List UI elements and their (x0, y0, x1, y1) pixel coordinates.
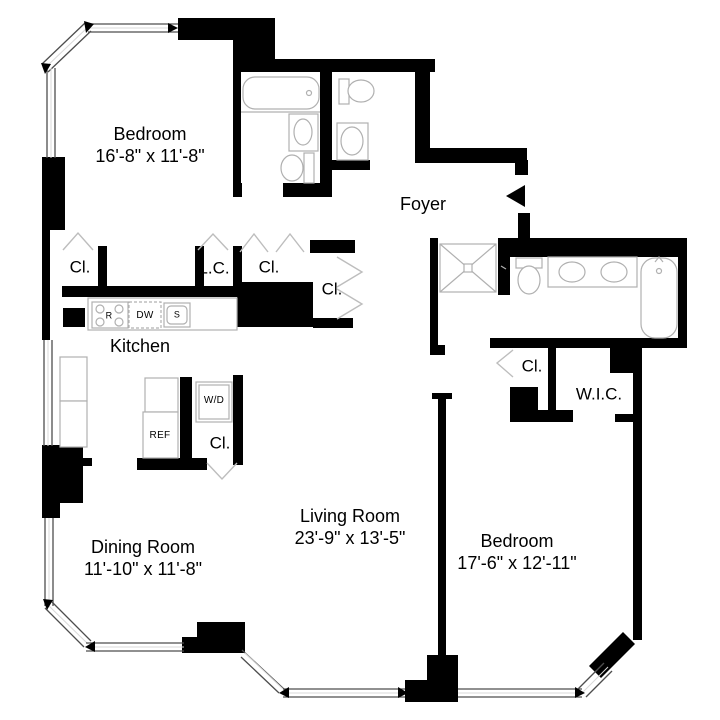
closet-label-bedroom2: Cl. (522, 357, 543, 378)
closet-label-bedroom1: Cl. (70, 258, 91, 279)
room-name: Bedroom (95, 124, 204, 146)
room-label-foyer: Foyer (400, 194, 446, 216)
closet-door-chevron (276, 234, 304, 252)
room-label-living-room: Living Room 23'-9" x 13'-5" (295, 506, 406, 550)
closet-door-chevron (497, 350, 513, 377)
room-dims: 16'-8" x 11'-8" (95, 146, 204, 168)
closet-door-chevron (63, 233, 93, 250)
appliance-label-sink: S (174, 310, 180, 321)
toilet-icon (516, 258, 542, 294)
appliance-label-refrigerator: REF (150, 430, 171, 442)
floor-plan-drawing (0, 0, 720, 720)
bathtub-icon (641, 257, 677, 338)
room-name: Bedroom (457, 531, 576, 553)
room-label-kitchen: Kitchen (110, 336, 170, 358)
toilet-icon (339, 79, 374, 104)
closet-door-chevron (240, 234, 268, 252)
closet-label-laundry: Cl. (210, 434, 231, 455)
room-label-bedroom-1: Bedroom 16'-8" x 11'-8" (95, 124, 204, 168)
room-dims: 23'-9" x 13'-5" (295, 528, 406, 550)
room-label-dining-room: Dining Room 11'-10" x 11'-8" (84, 537, 202, 581)
cabinet-icon (60, 357, 87, 401)
appliance-label-dishwasher: DW (136, 310, 153, 322)
sink-icon (337, 123, 368, 160)
room-label-wic: W.I.C. (576, 385, 622, 406)
closet-label-foyer: Cl. (322, 280, 343, 301)
cabinet-icon (145, 378, 178, 412)
walls-layer (42, 18, 687, 702)
closet-label-hall: Cl. (259, 258, 280, 279)
room-name: Dining Room (84, 537, 202, 559)
room-name: Living Room (295, 506, 406, 528)
master-bathroom (440, 244, 677, 338)
room-dims: 11'-10" x 11'-8" (84, 559, 202, 581)
toilet-icon (281, 153, 314, 183)
sink-icon (289, 114, 318, 151)
double-sink-vanity-icon (548, 257, 637, 287)
closet-label-linen: L.C. (198, 259, 229, 280)
room-label-bedroom-2: Bedroom 17'-6" x 12'-11" (457, 531, 576, 575)
closet-door-chevron (207, 463, 237, 479)
bathroom-2 (337, 79, 374, 160)
entry-door-icon (506, 185, 525, 207)
shower-icon (440, 244, 506, 292)
appliance-label-range: R (106, 311, 113, 322)
appliance-label-washer-dryer: W/D (204, 395, 224, 407)
bathroom-1 (241, 77, 320, 183)
bathtub-icon (243, 77, 319, 109)
cabinet-icon (60, 401, 87, 447)
floor-plan: Bedroom 16'-8" x 11'-8" Foyer Kitchen Di… (0, 0, 720, 720)
room-dims: 17'-6" x 12'-11" (457, 553, 576, 575)
